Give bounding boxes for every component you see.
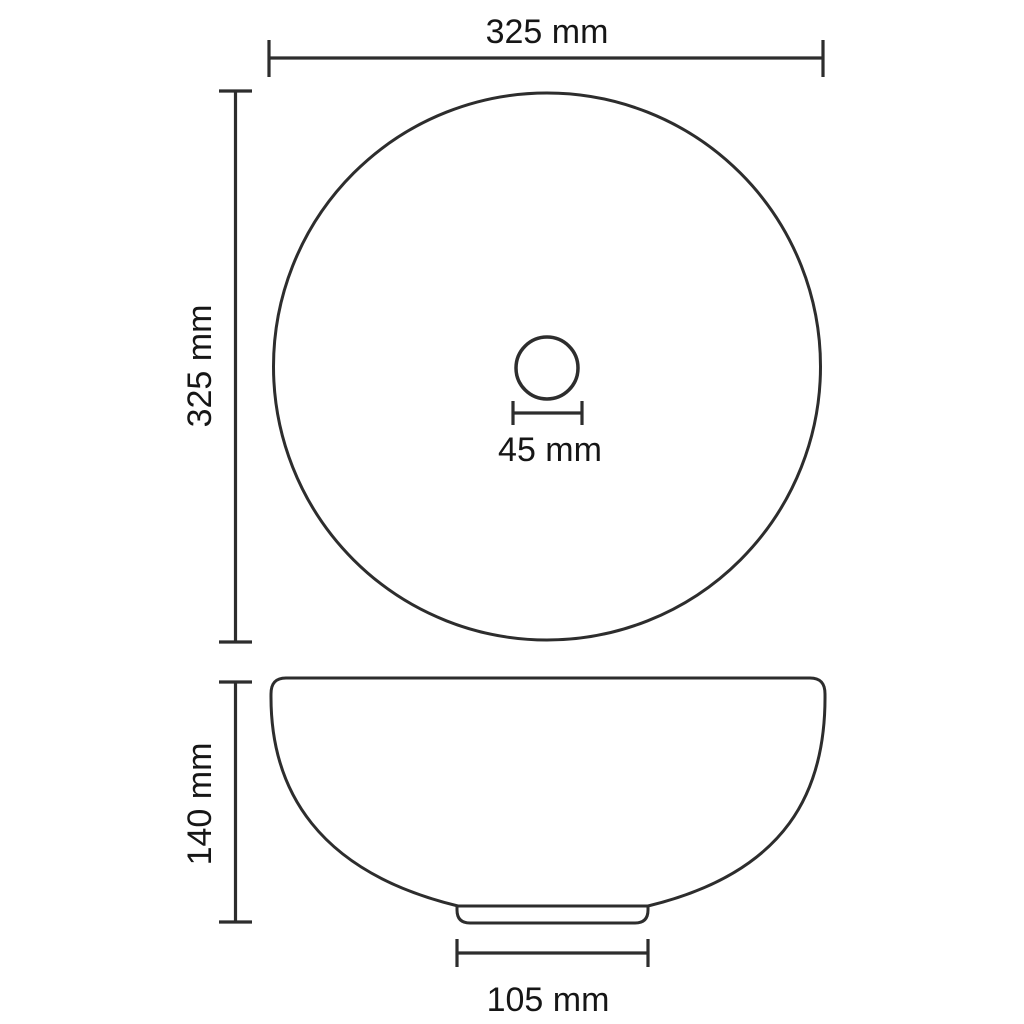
dimension-label-overall-width: 325 mm [486,13,609,51]
dimension-overall-depth: 325 mm [181,91,252,642]
side-view [271,678,825,923]
dimension-base-diameter: 105 mm [457,939,648,1019]
technical-drawing: 325 mm 325 mm 45 mm 140 mm 1 [0,0,1024,1024]
dimension-overall-width: 325 mm [269,13,823,77]
dimension-label-base-diameter: 105 mm [487,981,610,1019]
basin-base-foot [457,906,648,923]
dimension-label-overall-depth: 325 mm [181,305,219,428]
dimension-drain-diameter: 45 mm [498,401,602,469]
top-view [274,93,821,640]
drain-hole-circle [516,337,578,399]
dimension-label-drain-diameter: 45 mm [498,431,602,469]
basin-rim-circle [274,93,821,640]
basin-bowl-profile [271,678,825,906]
dimension-label-overall-height: 140 mm [181,743,219,866]
dimension-overall-height: 140 mm [181,682,252,922]
diagram-svg: 325 mm 325 mm 45 mm 140 mm 1 [0,0,1024,1024]
